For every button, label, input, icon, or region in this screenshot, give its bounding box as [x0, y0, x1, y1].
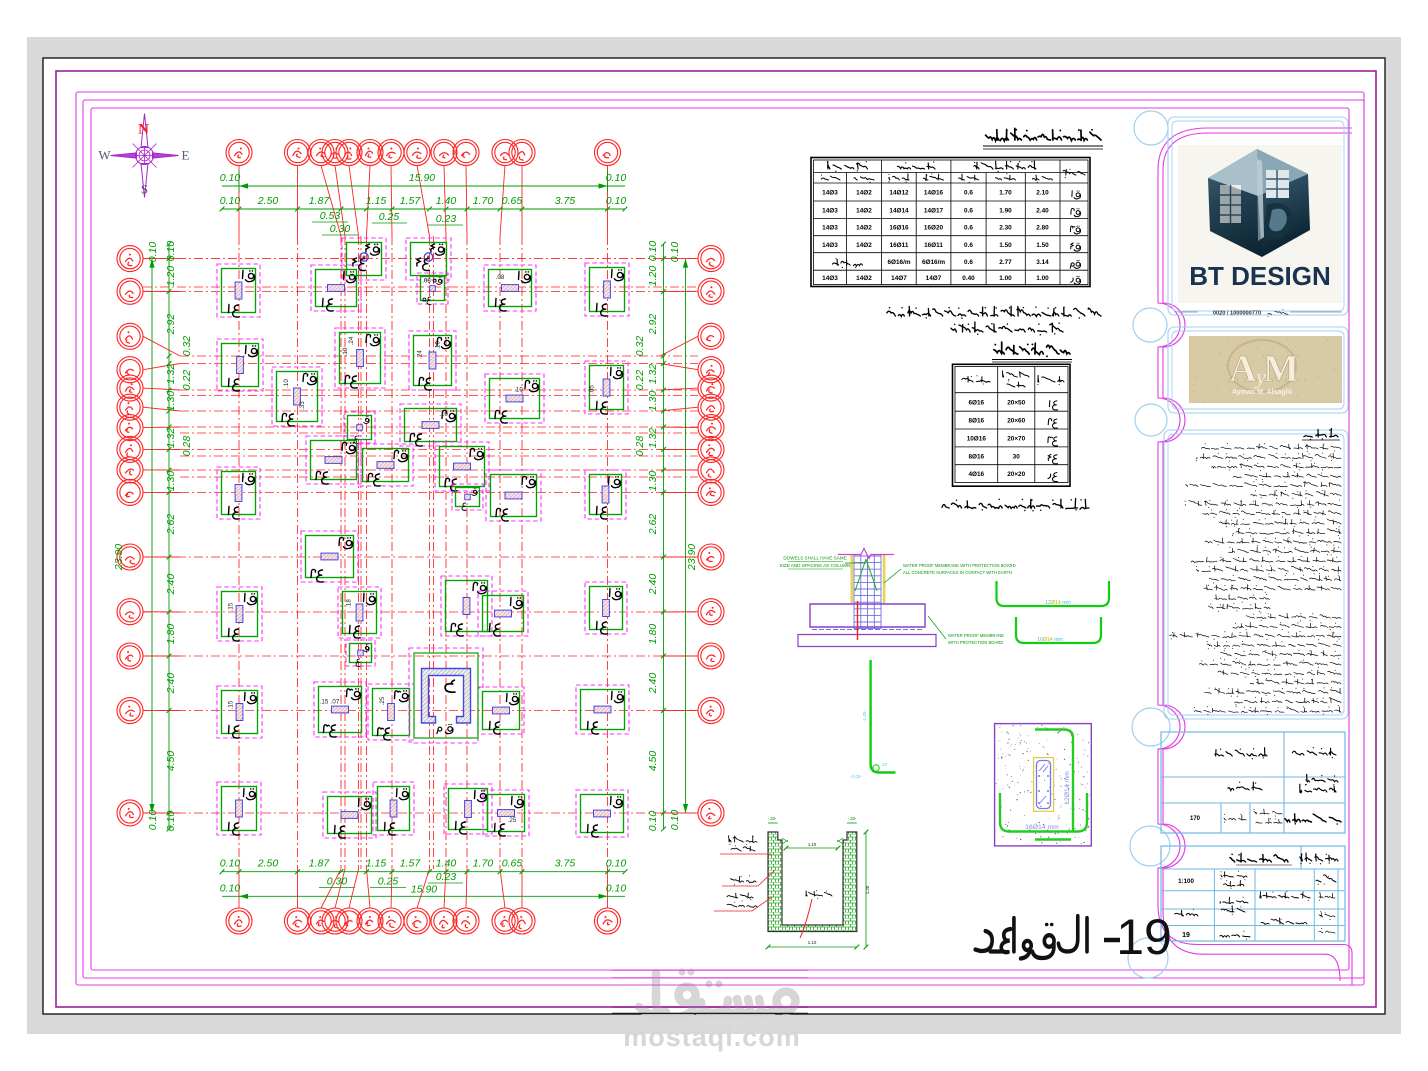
svg-text:WATER PROOF MEMBRANE WITH PROT: WATER PROOF MEMBRANE WITH PROTECTION BOA… [903, 563, 1016, 568]
svg-text:14Ø3: 14Ø3 [822, 275, 838, 282]
svg-text:2.62: 2.62 [647, 514, 659, 536]
svg-text:y: y [1254, 364, 1266, 389]
svg-text:0.23: 0.23 [436, 871, 457, 883]
svg-text:1.30: 1.30 [647, 471, 659, 492]
svg-text:1.20: 1.20 [165, 266, 177, 287]
svg-text:.20: .20 [881, 762, 887, 767]
svg-text:1.32: 1.32 [647, 428, 659, 449]
svg-text:1.10: 1.10 [808, 842, 817, 847]
svg-text:3.75: 3.75 [555, 195, 576, 207]
svg-text:0.65: 0.65 [502, 195, 523, 207]
svg-text:1.15: 1.15 [366, 195, 387, 207]
svg-text:8Ø16: 8Ø16 [968, 418, 984, 425]
svg-text:0.10: 0.10 [669, 242, 681, 263]
svg-text:14Ø17: 14Ø17 [924, 207, 944, 214]
svg-text:0.10: 0.10 [165, 811, 177, 832]
svg-text:0.25: 0.25 [378, 876, 399, 888]
svg-text:1.00: 1.00 [999, 275, 1012, 282]
svg-text:1.50: 1.50 [1036, 242, 1049, 249]
svg-text:.25: .25 [379, 696, 386, 705]
svg-text:14Ø3: 14Ø3 [822, 207, 838, 214]
svg-text:4Ø16: 4Ø16 [968, 471, 984, 478]
svg-text:2.80: 2.80 [1036, 225, 1049, 232]
svg-text:2.77: 2.77 [999, 259, 1012, 266]
svg-text:.05: .05 [589, 385, 596, 394]
svg-text:BT DESIGN: BT DESIGN [1189, 261, 1331, 291]
svg-text:14Ø2: 14Ø2 [856, 225, 872, 232]
svg-text:6Ø16/m: 6Ø16/m [887, 259, 910, 266]
svg-text:DOWELS SHALL HAVE SAME: DOWELS SHALL HAVE SAME [783, 556, 846, 561]
svg-text:2.62: 2.62 [165, 514, 177, 536]
svg-text:20×70: 20×70 [1007, 436, 1025, 443]
svg-text:14Ø2: 14Ø2 [856, 242, 872, 249]
svg-text:1.32: 1.32 [165, 364, 177, 385]
svg-text:0.22: 0.22 [181, 370, 193, 391]
svg-text:2.10: 2.10 [1036, 190, 1049, 197]
svg-text:0.40: 0.40 [962, 275, 975, 282]
svg-text:16Ø11: 16Ø11 [924, 242, 943, 249]
svg-text:0.10: 0.10 [669, 810, 681, 831]
svg-text:M: M [1263, 348, 1299, 390]
svg-text:0.10: 0.10 [165, 241, 177, 262]
svg-text:0.10: 0.10 [220, 195, 241, 207]
svg-text:-1.05-: -1.05- [862, 710, 867, 722]
svg-text:1.32: 1.32 [647, 364, 659, 385]
svg-text:14Ø2: 14Ø2 [856, 275, 872, 282]
svg-text:.18: .18 [346, 599, 353, 608]
svg-text:.08: .08 [422, 278, 431, 285]
svg-text:14Ø2: 14Ø2 [856, 190, 872, 197]
svg-text:14Ø3: 14Ø3 [822, 225, 838, 232]
svg-text:0.30: 0.30 [327, 876, 348, 888]
svg-text:.10: .10 [342, 347, 349, 356]
svg-text:0.10: 0.10 [606, 195, 627, 207]
svg-text:2.92: 2.92 [165, 314, 177, 336]
svg-text:20×20: 20×20 [1007, 471, 1025, 478]
svg-text:2.50: 2.50 [257, 858, 279, 870]
svg-text:0.10: 0.10 [147, 810, 159, 831]
svg-text:2.40: 2.40 [165, 574, 177, 596]
svg-text:.10: .10 [514, 387, 523, 394]
svg-text:10Ø16: 10Ø16 [967, 436, 987, 443]
svg-text:0.10: 0.10 [220, 858, 241, 870]
svg-text:WITH PROTECTION BOARD: WITH PROTECTION BOARD [948, 640, 1003, 645]
svg-text:14Ø2: 14Ø2 [856, 207, 872, 214]
svg-text:20×50: 20×50 [1007, 400, 1025, 407]
svg-text:0.28: 0.28 [634, 436, 646, 457]
svg-text:1.00: 1.00 [1036, 275, 1049, 282]
svg-text:14Ø3: 14Ø3 [822, 242, 838, 249]
svg-text:1.80: 1.80 [647, 624, 659, 645]
svg-text:23.90: 23.90 [113, 544, 125, 571]
svg-text:1.10: 1.10 [808, 940, 817, 945]
svg-text:4.50: 4.50 [647, 751, 659, 772]
svg-text:3.75: 3.75 [555, 858, 576, 870]
svg-text:WATER PROOF MEMBRANE: WATER PROOF MEMBRANE [948, 633, 1004, 638]
svg-text:0.10: 0.10 [147, 242, 159, 263]
svg-text:0.10: 0.10 [606, 172, 627, 184]
svg-text:30: 30 [1013, 453, 1021, 460]
svg-text:0.6: 0.6 [964, 207, 973, 214]
svg-text:mostaql.com: mostaql.com [623, 1022, 801, 1052]
svg-text:.33: .33 [299, 401, 306, 410]
svg-text:E: E [182, 148, 190, 163]
svg-text:S: S [141, 182, 148, 197]
svg-text:15.90: 15.90 [409, 172, 435, 184]
svg-text:SIZE AND SPACING AS COLUMN: SIZE AND SPACING AS COLUMN [780, 563, 851, 568]
svg-text:2.40: 2.40 [647, 673, 659, 695]
svg-text:2.40: 2.40 [647, 574, 659, 596]
svg-text:0.30: 0.30 [330, 223, 351, 235]
svg-text:.15: .15 [228, 700, 235, 709]
svg-text:2.50: 2.50 [257, 195, 279, 207]
svg-text:14Ø3: 14Ø3 [822, 190, 838, 197]
svg-text:16Ø16: 16Ø16 [889, 225, 909, 232]
svg-text:1.20: 1.20 [647, 266, 659, 287]
svg-text:2.40: 2.40 [165, 673, 177, 695]
svg-text:0.6: 0.6 [964, 259, 973, 266]
svg-text:15.90: 15.90 [411, 883, 437, 895]
svg-text:14Ø14: 14Ø14 [889, 207, 909, 214]
svg-text:1.57: 1.57 [400, 195, 422, 207]
svg-text:1.15: 1.15 [366, 858, 387, 870]
svg-text:0.23: 0.23 [436, 213, 457, 225]
svg-text:1.50: 1.50 [999, 242, 1012, 249]
svg-text:.15: .15 [228, 602, 235, 611]
svg-text:20×60: 20×60 [1007, 418, 1025, 425]
svg-text:14Ø7: 14Ø7 [891, 275, 907, 282]
svg-text:16Ø11: 16Ø11 [890, 242, 909, 249]
svg-text:6Ø16: 6Ø16 [968, 400, 984, 407]
svg-text:2.92: 2.92 [647, 314, 659, 336]
svg-text:1.70: 1.70 [473, 858, 494, 870]
svg-text:ALL CONCRETE SURFACES IN CONTA: ALL CONCRETE SURFACES IN CONTACT WITH EA… [903, 570, 1012, 575]
svg-text:14Ø16: 14Ø16 [924, 190, 944, 197]
svg-text:23.90: 23.90 [686, 544, 698, 571]
svg-text:Ayman M. Alsaghi: Ayman M. Alsaghi [1232, 389, 1292, 396]
svg-text:-3.00-: -3.00- [850, 774, 862, 779]
svg-text:.07: .07 [331, 699, 340, 706]
svg-text:0020 / 1000000770: 0020 / 1000000770 [1213, 311, 1261, 317]
svg-text:2.30: 2.30 [999, 225, 1012, 232]
svg-text:.24: .24 [348, 336, 355, 345]
svg-text:0.28: 0.28 [181, 436, 193, 457]
svg-text:1.70: 1.70 [473, 195, 494, 207]
svg-text:14Ø7: 14Ø7 [926, 275, 942, 282]
svg-text:6Ø16/m: 6Ø16/m [922, 259, 945, 266]
svg-text:0.10: 0.10 [606, 858, 627, 870]
svg-text:1.70: 1.70 [999, 190, 1012, 197]
svg-text:0.32: 0.32 [181, 336, 193, 357]
svg-text:0.22: 0.22 [634, 370, 646, 391]
svg-text:12Ø14 mm: 12Ø14 mm [1064, 771, 1071, 805]
svg-text:1.40: 1.40 [436, 858, 457, 870]
svg-text:.15: .15 [320, 699, 329, 706]
svg-text:A: A [1229, 348, 1257, 390]
svg-text:12Ø14 mm: 12Ø14 mm [1045, 600, 1071, 606]
svg-text:0.10: 0.10 [647, 241, 659, 262]
svg-text:-.33-: -.33- [768, 816, 777, 821]
svg-text:19: 19 [1182, 932, 1190, 939]
svg-text:W: W [98, 148, 111, 163]
svg-text:1.30: 1.30 [647, 391, 659, 412]
svg-text:0.6: 0.6 [964, 225, 973, 232]
svg-text:4.50: 4.50 [165, 751, 177, 772]
svg-text:.24: .24 [417, 350, 424, 359]
svg-text:8Ø16: 8Ø16 [968, 453, 984, 460]
svg-text:1.32: 1.32 [165, 428, 177, 449]
svg-text:3.14: 3.14 [1036, 259, 1049, 266]
svg-text:16Ø14 mm: 16Ø14 mm [1025, 824, 1059, 831]
svg-text:0.65: 0.65 [502, 858, 523, 870]
svg-text:.08: .08 [496, 274, 505, 281]
svg-text:1.90: 1.90 [999, 207, 1012, 214]
svg-text:1.80: 1.80 [165, 624, 177, 645]
svg-text:1.20: 1.20 [865, 885, 870, 894]
svg-text:0.10: 0.10 [220, 172, 241, 184]
svg-text:1.87: 1.87 [309, 195, 331, 207]
svg-text:16Ø14 mm: 16Ø14 mm [1037, 637, 1063, 643]
svg-text:.25: .25 [508, 817, 517, 824]
svg-text:0.10: 0.10 [220, 882, 241, 894]
svg-text:2.40: 2.40 [1036, 207, 1049, 214]
svg-text:1:100: 1:100 [1178, 878, 1194, 885]
svg-text:N: N [138, 122, 149, 138]
svg-text:1.57: 1.57 [400, 858, 422, 870]
svg-text:1.87: 1.87 [309, 858, 331, 870]
svg-text:0.6: 0.6 [964, 242, 973, 249]
svg-text:19: 19 [1116, 909, 1172, 965]
svg-text:.10: .10 [439, 411, 448, 418]
svg-text:.10: .10 [435, 341, 442, 350]
svg-text:1.40: 1.40 [436, 195, 457, 207]
svg-text:0.10: 0.10 [606, 882, 627, 894]
svg-text:1.30: 1.30 [165, 391, 177, 412]
svg-text:0.6: 0.6 [964, 190, 973, 197]
svg-text:0.25: 0.25 [379, 211, 400, 223]
svg-text:170: 170 [1190, 816, 1201, 822]
svg-text:1.30: 1.30 [165, 471, 177, 492]
svg-text:0.10: 0.10 [647, 811, 659, 832]
svg-text:0.32: 0.32 [634, 336, 646, 357]
svg-text:.10: .10 [283, 379, 290, 388]
svg-text:0.53: 0.53 [320, 210, 341, 222]
svg-text:-.33-: -.33- [848, 816, 857, 821]
svg-text:14Ø12: 14Ø12 [889, 190, 909, 197]
svg-text:16Ø20: 16Ø20 [924, 225, 944, 232]
